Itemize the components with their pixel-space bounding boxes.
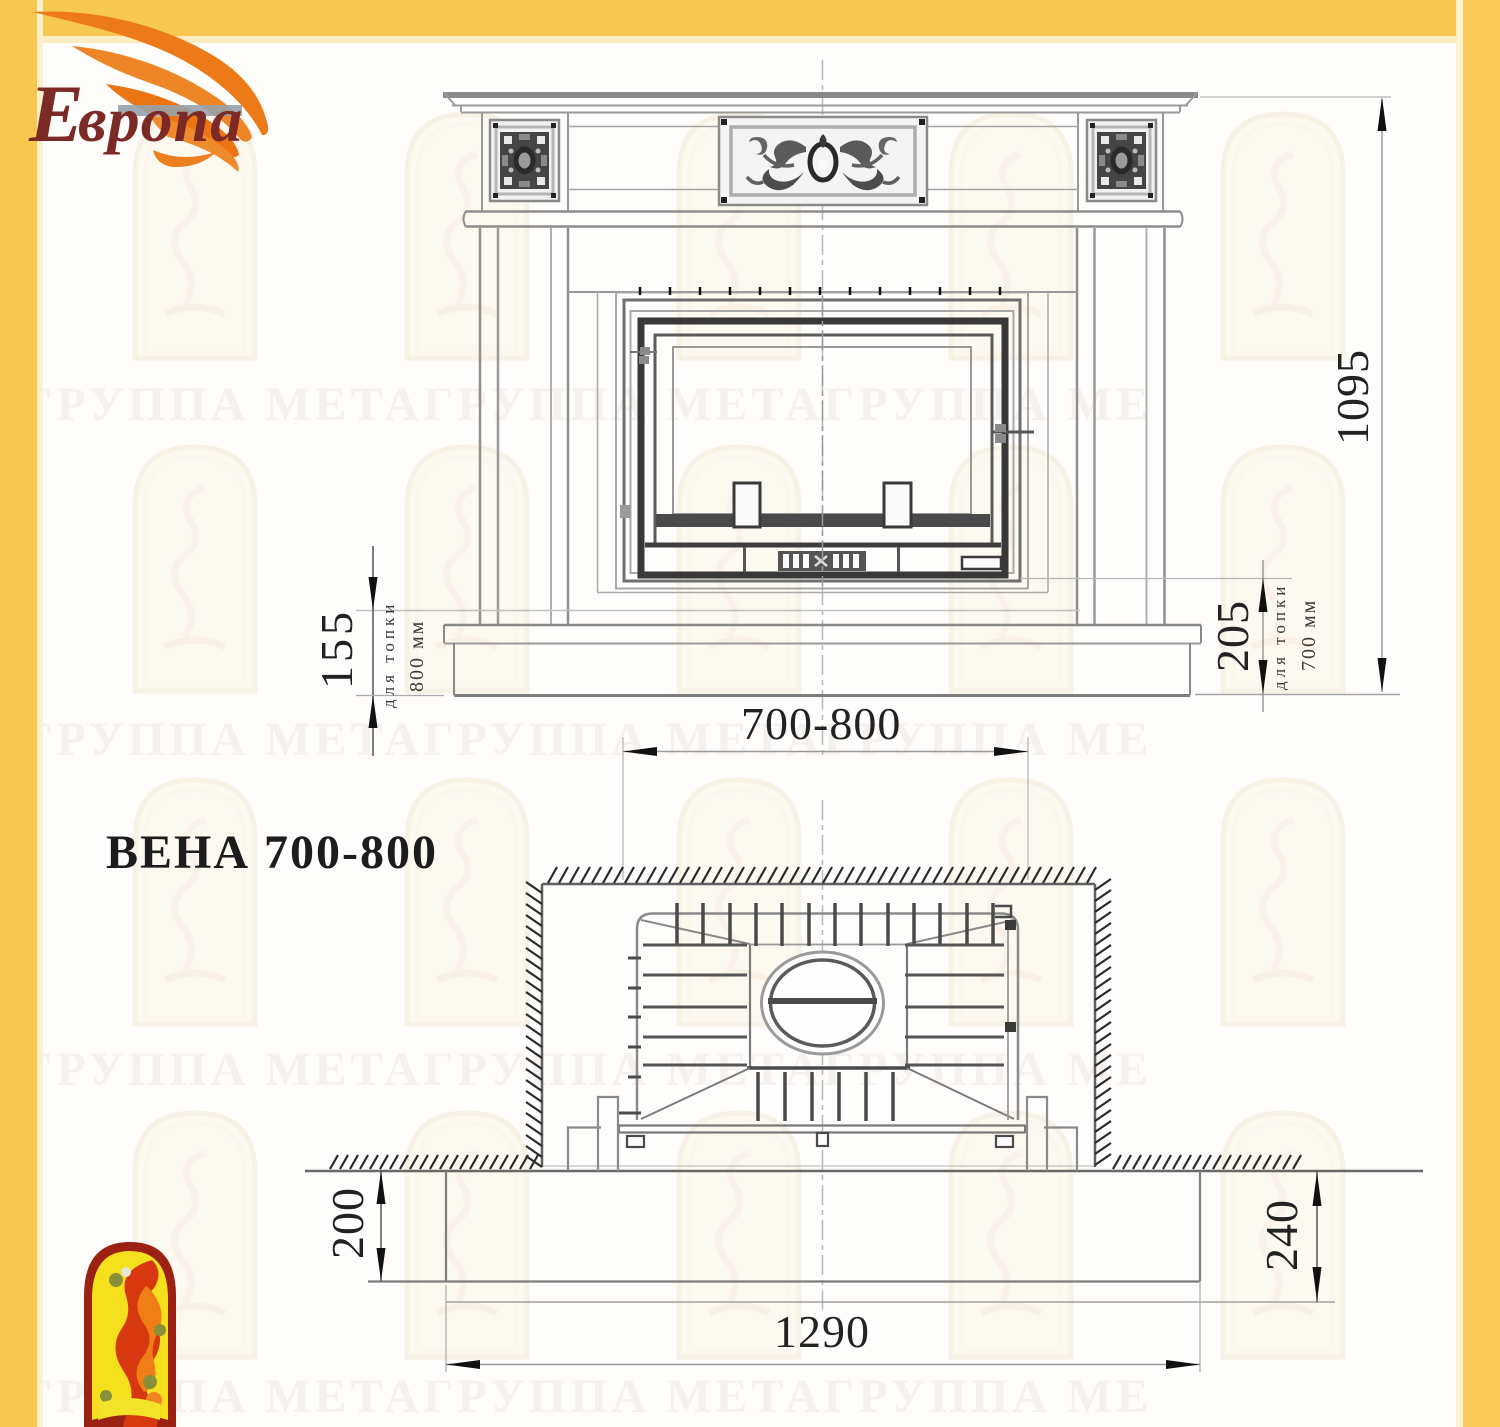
- svg-text:700 мм: 700 мм: [1298, 599, 1320, 671]
- svg-text:800 мм: 800 мм: [406, 620, 428, 692]
- svg-text:Е: Е: [28, 68, 84, 159]
- svg-text:ГРУППА МЕТАГРУППА МЕТАГРУППА М: ГРУППА МЕТАГРУППА МЕТАГРУППА МЕ: [22, 1370, 1152, 1423]
- svg-text:ВЕНА 700-800: ВЕНА 700-800: [106, 826, 438, 879]
- svg-text:200: 200: [322, 1187, 373, 1259]
- svg-text:вропа: вропа: [78, 84, 243, 155]
- svg-text:155: 155: [311, 608, 362, 689]
- svg-text:205: 205: [1207, 600, 1258, 672]
- svg-text:700-800: 700-800: [741, 698, 901, 749]
- svg-text:ГРУППА МЕТАГРУППА МЕТАГРУППА М: ГРУППА МЕТАГРУППА МЕТАГРУППА МЕ: [22, 1043, 1152, 1096]
- svg-text:1290: 1290: [774, 1306, 870, 1357]
- svg-text:для топки: для топки: [1270, 583, 1289, 690]
- svg-text:1095: 1095: [1327, 349, 1378, 445]
- svg-text:240: 240: [1256, 1199, 1307, 1271]
- svg-text:ГРУППА МЕТАГРУППА МЕТАГРУППА М: ГРУППА МЕТАГРУППА МЕТАГРУППА МЕ: [22, 378, 1152, 431]
- svg-text:для топки: для топки: [379, 601, 398, 708]
- svg-text:ГРУППА МЕТАГРУППА МЕТАГРУППА М: ГРУППА МЕТАГРУППА МЕТАГРУППА МЕ: [22, 713, 1152, 766]
